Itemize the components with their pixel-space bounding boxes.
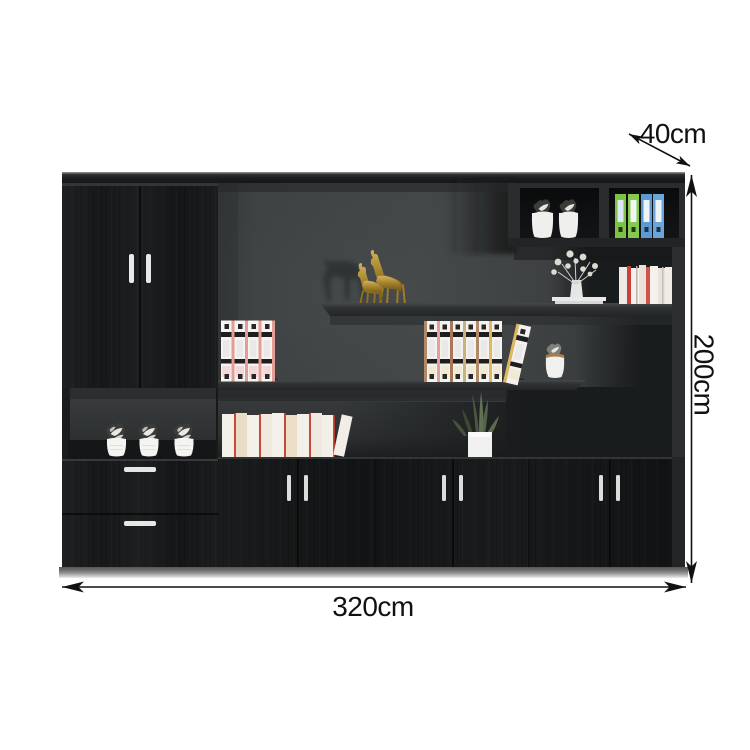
svg-text:40cm: 40cm <box>640 118 706 149</box>
svg-text:200cm: 200cm <box>689 334 720 416</box>
svg-text:320cm: 320cm <box>332 591 414 622</box>
